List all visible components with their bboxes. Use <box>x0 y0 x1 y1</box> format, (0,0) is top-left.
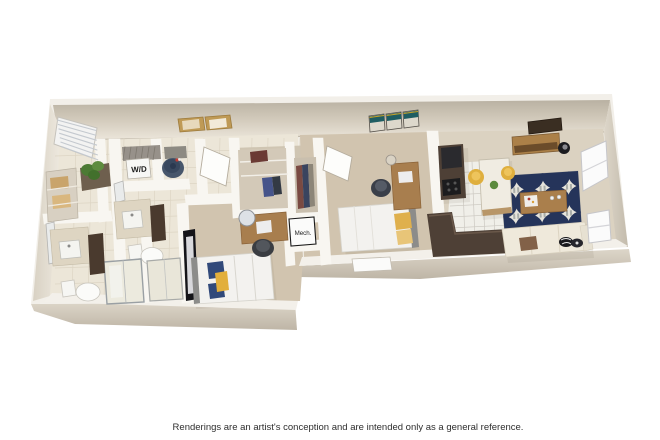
svg-text:Mech.: Mech. <box>295 230 312 237</box>
svg-text:Renderings are an artist's con: Renderings are an artist's conception an… <box>173 422 524 433</box>
svg-text:W/D: W/D <box>131 165 147 175</box>
